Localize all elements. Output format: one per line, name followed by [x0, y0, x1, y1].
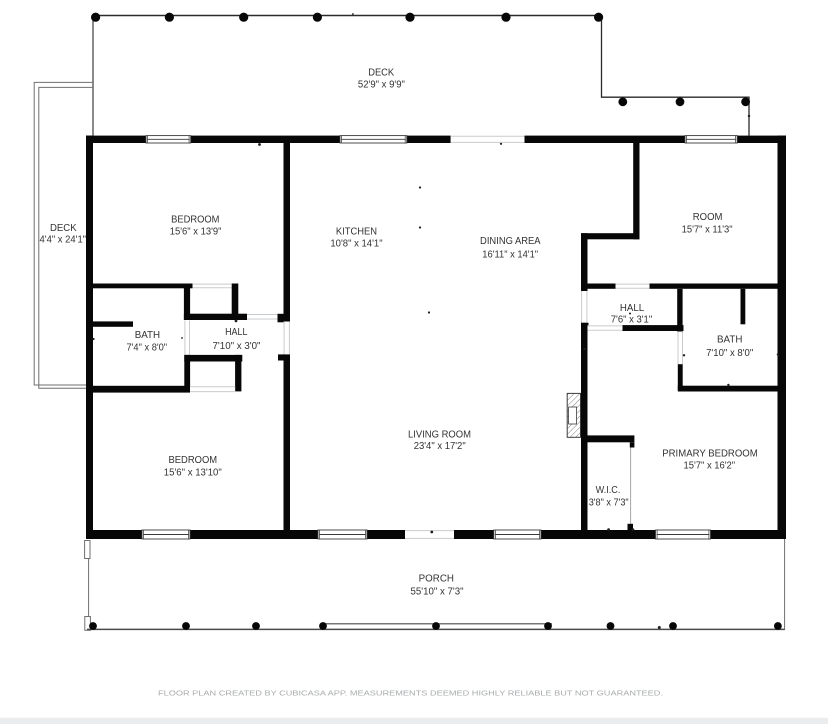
svg-text:16'11" x 14'1": 16'11" x 14'1"	[482, 249, 538, 260]
svg-text:LIVING ROOM: LIVING ROOM	[408, 428, 471, 440]
svg-text:7'10" x 8'0": 7'10" x 8'0"	[706, 348, 754, 359]
svg-text:7'4" x 8'0": 7'4" x 8'0"	[127, 343, 168, 354]
svg-text:52'9" x 9'9": 52'9" x 9'9"	[358, 80, 405, 91]
svg-text:15'7" x 11'3": 15'7" x 11'3"	[682, 224, 733, 235]
svg-text:7'6" x 3'1": 7'6" x 3'1"	[611, 314, 653, 325]
svg-text:BATH: BATH	[717, 334, 742, 346]
svg-text:KITCHEN: KITCHEN	[336, 226, 377, 238]
svg-text:DECK: DECK	[50, 222, 77, 234]
svg-text:ROOM: ROOM	[693, 211, 723, 223]
svg-text:HALL: HALL	[620, 302, 644, 314]
svg-text:7'10" x 3'0": 7'10" x 3'0"	[213, 341, 261, 352]
svg-text:4'4" x 24'1": 4'4" x 24'1"	[40, 235, 87, 246]
svg-text:23'4" x 17'2": 23'4" x 17'2"	[414, 441, 466, 452]
svg-text:3'8" x 7'3": 3'8" x 7'3"	[589, 497, 629, 508]
svg-text:55'10" x 7'3": 55'10" x 7'3"	[411, 586, 464, 597]
svg-text:PRIMARY BEDROOM: PRIMARY BEDROOM	[662, 448, 758, 460]
svg-text:DECK: DECK	[368, 67, 394, 79]
svg-text:10'8" x 14'1": 10'8" x 14'1"	[330, 239, 383, 250]
svg-text:15'6" x 13'9": 15'6" x 13'9"	[170, 227, 222, 238]
svg-text:FLOOR PLAN CREATED BY CUBICASA: FLOOR PLAN CREATED BY CUBICASA APP. MEAS…	[158, 689, 663, 698]
svg-text:BEDROOM: BEDROOM	[171, 213, 219, 225]
svg-text:BEDROOM: BEDROOM	[169, 454, 218, 466]
svg-text:15'7" x 16'2": 15'7" x 16'2"	[684, 461, 736, 472]
svg-text:BATH: BATH	[135, 329, 160, 341]
svg-text:W.I.C.: W.I.C.	[596, 484, 621, 496]
svg-text:DINING AREA: DINING AREA	[480, 235, 541, 247]
svg-text:PORCH: PORCH	[419, 573, 454, 585]
svg-text:15'6" x 13'10": 15'6" x 13'10"	[164, 468, 222, 479]
svg-text:HALL: HALL	[225, 326, 248, 338]
